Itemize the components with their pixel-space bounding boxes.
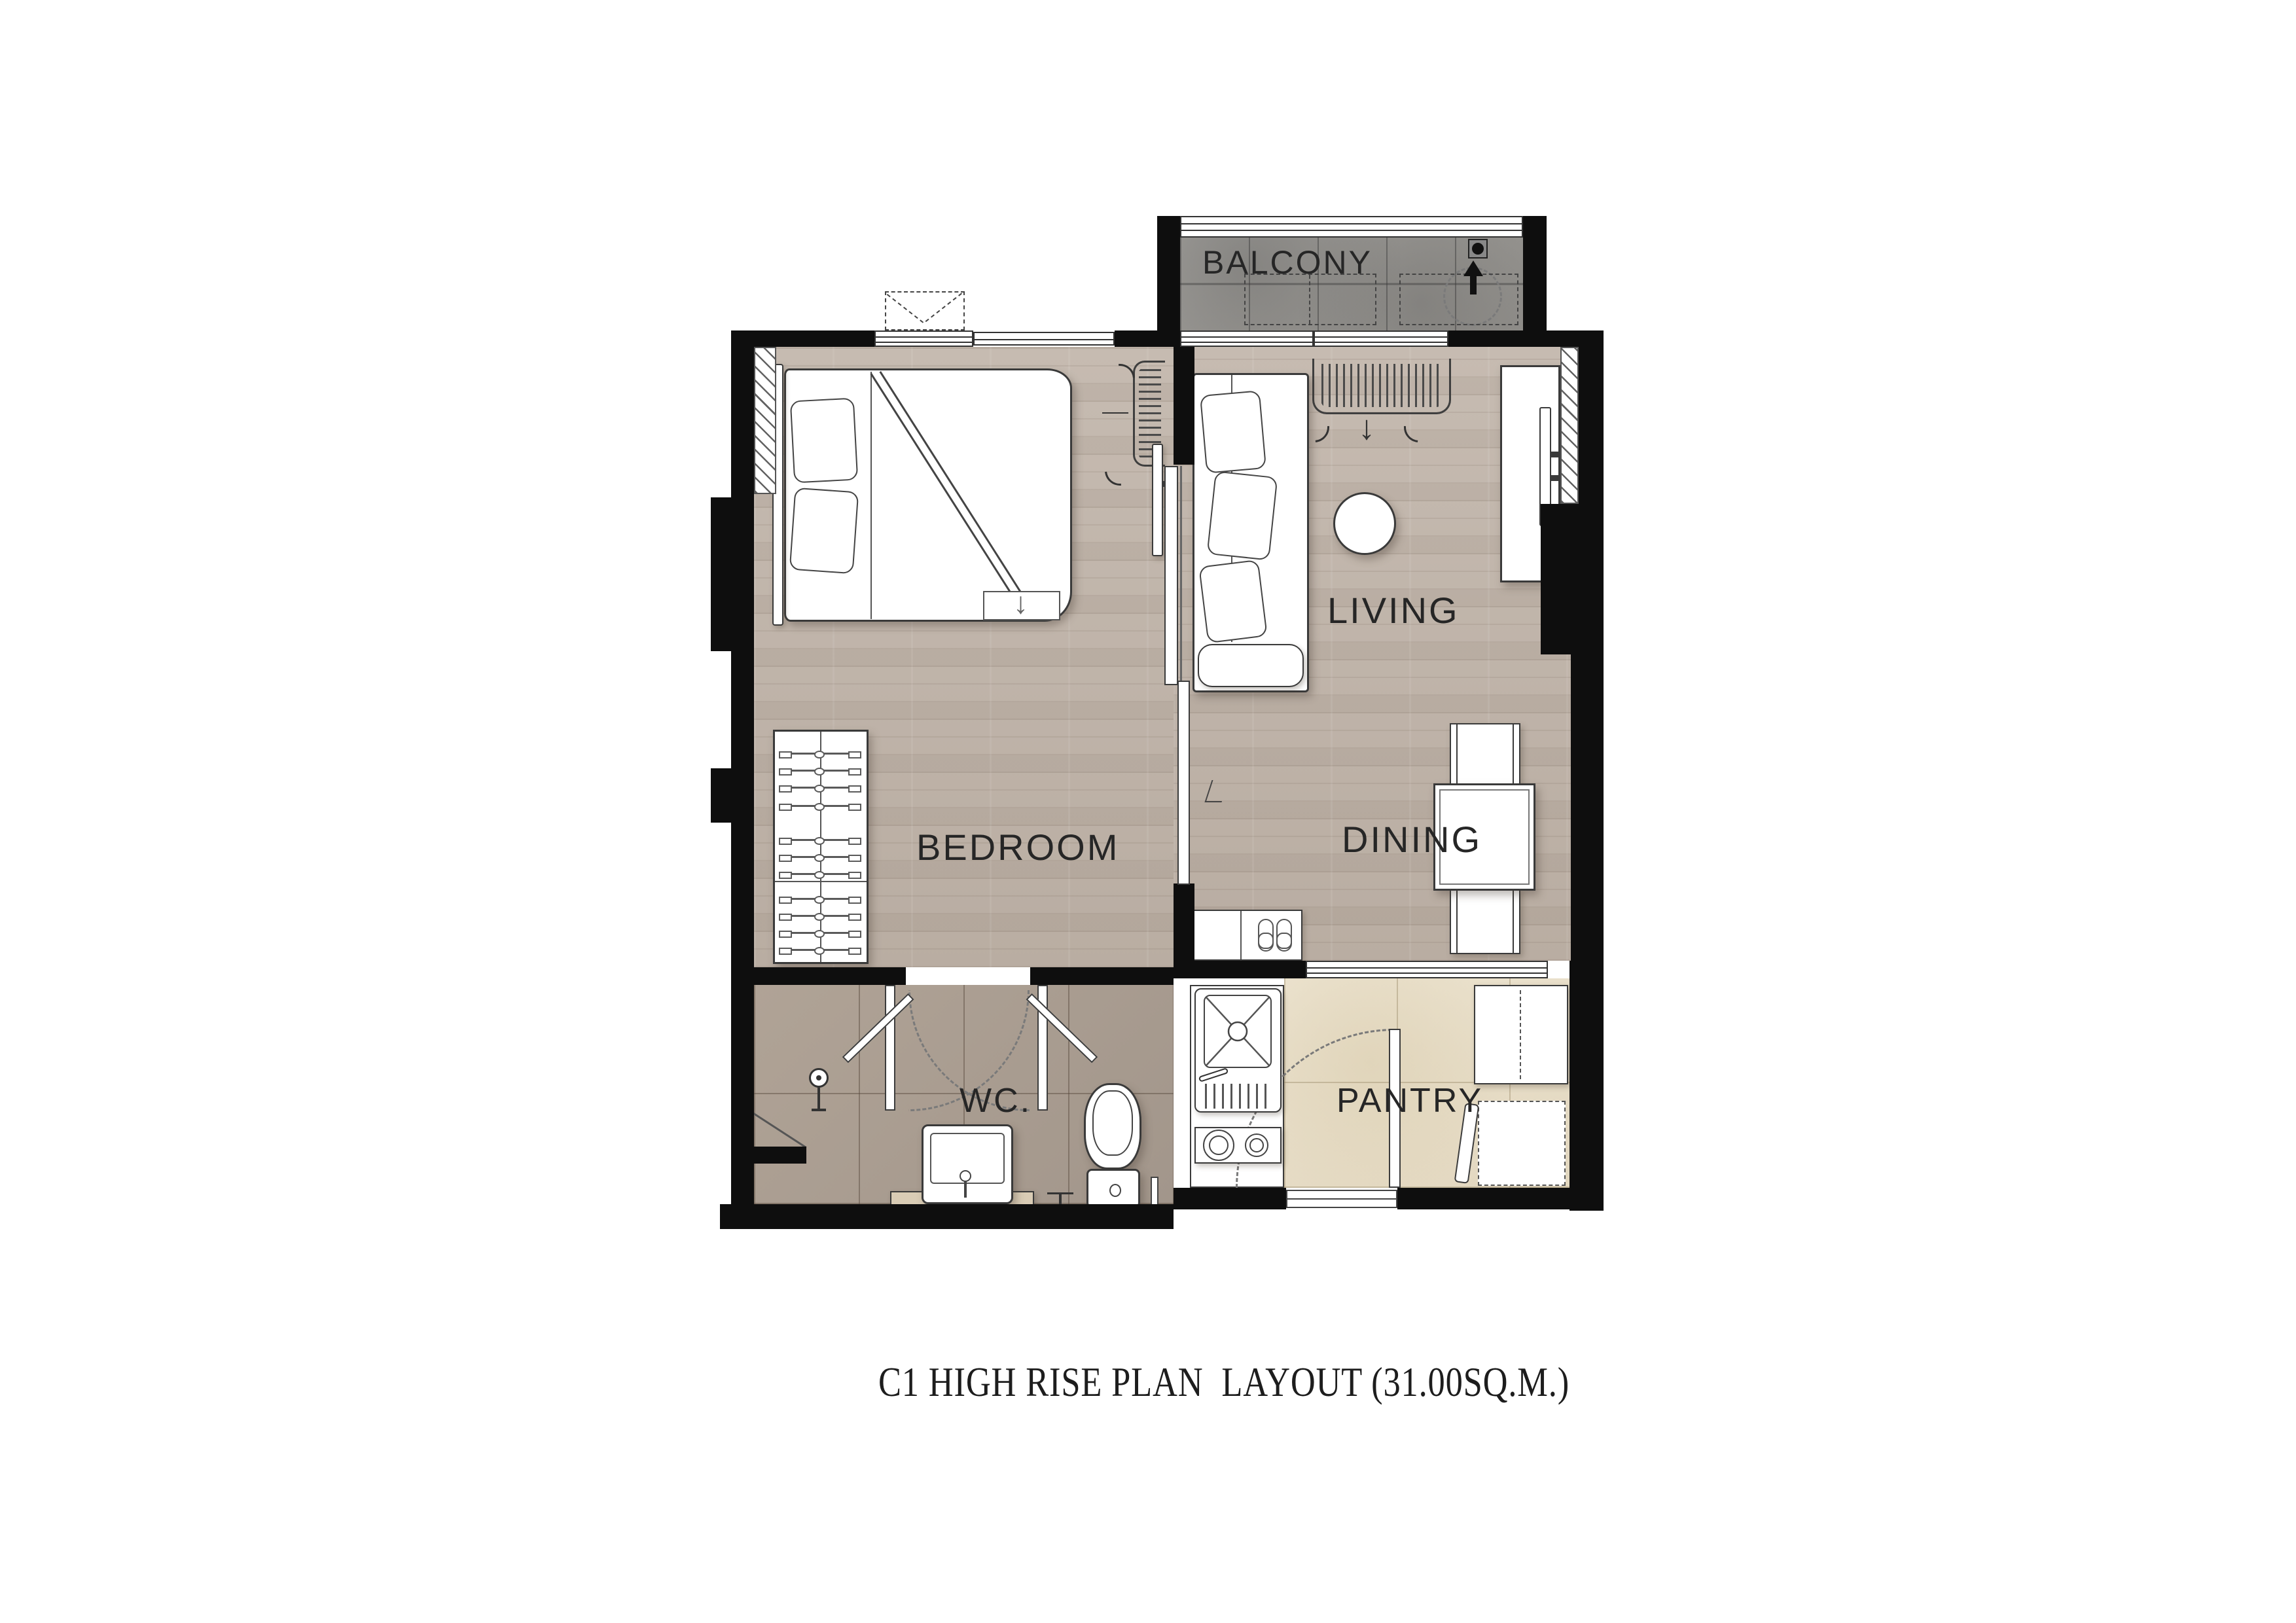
ac-unit-divider [1309,275,1310,324]
living-tv-mount [1551,475,1560,481]
sill-line [975,339,1113,340]
pantry-sliding-window-line [1307,967,1547,969]
kitchen-sink-unit [1194,988,1282,1113]
bedroom-label: BEDROOM [916,826,1119,868]
burner-icon [1203,1130,1234,1161]
wc-basin [922,1124,1013,1204]
toilet-paper-holder [1151,1177,1158,1207]
toilet-bowl-inner [1092,1090,1133,1156]
center-wall-bottom [1174,883,1194,967]
refrigerator-door-split [1520,990,1521,1079]
bedroom-tv [1152,444,1163,556]
sliding-door-panel [1177,681,1190,885]
coffee-table [1333,492,1396,555]
bedroom-shaft-hatch [754,347,776,494]
kitchen-faucet [1198,1067,1229,1082]
shower-stem [817,1086,820,1109]
wc-door-opening [906,967,1030,985]
slippers-icon [1276,919,1292,952]
vent-down-arrow-icon: ↓ [1358,411,1375,445]
plan-title: C1 HIGH RISE PLAN LAYOUT (31.00SQ.M.) [838,1358,1611,1406]
balcony-left-wall [1157,216,1180,347]
shower-valve [812,1109,826,1111]
railing-line [1181,223,1522,224]
hanger-icon [780,856,860,858]
living-shaft-hatch [1560,347,1579,504]
bed-fold-arrow-icon: ↓ [1013,588,1028,618]
sofa-cushion [1207,471,1278,560]
pantry-right-wall [1570,961,1604,1211]
pantry-sliding-window [1306,961,1548,978]
living-balcony-sliding-door [1180,330,1448,347]
toilet-bowl [1084,1083,1141,1169]
window-line [876,342,972,343]
bed-pillow [789,488,859,575]
sofa-cushion [1198,560,1268,643]
shower-head-dot [816,1075,821,1080]
window-line [876,336,972,338]
balcony-arrow-stem [1470,275,1477,294]
bed-sheet-line [870,372,872,619]
entry-threshold [1286,1190,1397,1208]
bedroom-window [874,330,973,347]
living-tv-mount [1551,452,1560,457]
kitchen-drainer [1205,1084,1272,1109]
dining-chair [1450,723,1520,789]
balcony-arrow-icon [1463,260,1483,276]
pantry-sliding-window-line [1307,972,1547,974]
shoe-cabinet-divider [1240,911,1242,959]
balcony-drain-dot [1472,243,1484,255]
hanger-icon [780,770,860,772]
dining-chair [1450,887,1520,954]
wardrobe [773,730,869,964]
wc-top-wall-left [754,967,906,985]
right-column [1541,504,1604,654]
burner-icon [1245,1133,1268,1157]
top-wall-bedroom-right [1115,330,1157,347]
toilet-flush-button [1109,1184,1121,1197]
wc-shower-step [731,1147,806,1164]
living-curtain-vent-icon [1312,359,1451,414]
window-mullion [1312,332,1315,346]
slippers-icon [1258,919,1274,952]
left-column-lower [711,768,754,823]
bedroom-window-sill [973,332,1115,346]
pantry-bottom-wall-right [1397,1188,1602,1209]
balcony-railing [1180,216,1523,238]
washing-machine [1478,1101,1566,1186]
left-column-upper [711,497,754,651]
railing-line [1181,230,1522,231]
wc-partition [885,985,895,1111]
entry-threshold-line [1287,1198,1396,1200]
hanger-icon [780,949,860,951]
sofa-cushion [1200,390,1266,474]
hanger-icon [780,915,860,917]
sofa-armrest [1198,644,1304,687]
center-wall-top [1174,347,1194,465]
pantry-bottom-wall-left [1174,1188,1286,1209]
hanger-icon [780,839,860,841]
hanger-icon [780,753,860,755]
balcony-right-wall [1523,216,1547,347]
dining-pantry-wall [1174,961,1306,978]
hanger-icon [780,787,860,789]
vent-left-arrow-icon [1102,412,1128,414]
refrigerator [1474,985,1568,1084]
wc-bottom-wall [720,1204,1174,1229]
top-wall-bedroom-left [731,330,874,347]
right-wall-mid [1571,654,1604,967]
right-wall-upper [1579,330,1604,504]
wc-basin-faucet-stem [964,1181,967,1198]
wc-label: WC. [960,1081,1031,1120]
wardrobe-center-rail [820,732,821,962]
hanger-icon [780,932,860,934]
dining-label: DINING [1342,818,1482,861]
sliding-door-panel [1164,466,1178,685]
hanger-icon [780,873,860,875]
wardrobe-divider [775,881,867,882]
ac-unit-outline-right [1399,274,1518,325]
hanger-icon [780,898,860,900]
kitchen-sink-x [1204,995,1272,1068]
toilet-tank [1086,1169,1140,1208]
balcony-label: BALCONY [1202,243,1372,281]
pantry-label: PANTRY [1336,1081,1483,1120]
floor-plan: BALCONY ↓ [0,0,2296,1623]
wc-top-wall-right [1030,967,1174,985]
bed-pillow [790,398,858,484]
hanger-icon [780,805,860,807]
living-label: LIVING [1327,589,1460,632]
